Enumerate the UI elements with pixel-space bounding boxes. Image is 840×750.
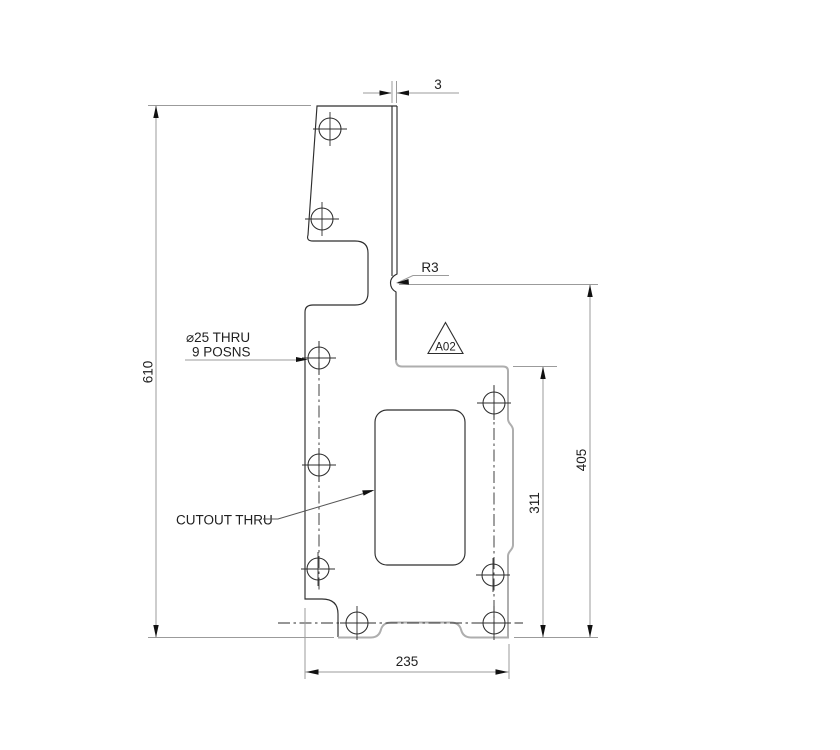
hole-left-top xyxy=(302,341,336,375)
dim-text-311: 311 xyxy=(527,492,542,514)
hole-right-top xyxy=(477,386,511,420)
arrowhead-3-left xyxy=(380,90,392,95)
hole-right-middle xyxy=(476,558,510,592)
arrowhead-610-bottom xyxy=(153,625,158,638)
hole-note-line1: ⌀25 THRU xyxy=(186,330,250,345)
revision-flag: A02 xyxy=(428,323,463,354)
arrowhead-235-right xyxy=(496,669,509,674)
hole-bottom-right xyxy=(477,606,511,640)
arrowhead-235-left xyxy=(306,669,319,674)
dimension-inner-height: 311 xyxy=(513,367,557,638)
outline-lower-right-profile xyxy=(338,360,513,638)
arrowhead-3-right xyxy=(397,90,409,95)
hole-note-line2: 9 POSNS xyxy=(192,345,251,360)
drawing-canvas: 3 610 405 311 235 R3 xyxy=(0,0,840,750)
flag-label: A02 xyxy=(435,342,455,354)
holes xyxy=(301,112,511,640)
hole-left-bottom xyxy=(301,552,335,586)
arrowhead-311-top xyxy=(540,367,545,380)
part-drawing-svg: 3 610 405 311 235 R3 xyxy=(0,0,840,750)
leader-hole-note: ⌀25 THRU 9 POSNS xyxy=(185,330,308,362)
hole-flange-upper xyxy=(313,112,347,146)
arrowhead-610-top xyxy=(153,106,158,119)
arrowhead-311-bottom xyxy=(540,625,545,638)
dim-text-610: 610 xyxy=(141,361,156,384)
leader-corner-radius: R3 xyxy=(396,260,449,285)
dimension-wall-thickness: 3 xyxy=(363,77,459,103)
arrowhead-r3 xyxy=(396,279,409,285)
dim-text-235: 235 xyxy=(396,654,419,669)
part-outline xyxy=(305,106,513,638)
arrowhead-405-top xyxy=(587,285,592,298)
cutout-thru-opening xyxy=(375,410,465,565)
dim-text-3: 3 xyxy=(434,77,442,92)
centerlines xyxy=(278,341,523,634)
arrowhead-cutout-note xyxy=(362,490,374,496)
arrowhead-405-bottom xyxy=(587,625,592,638)
cutout-note-label: CUTOUT THRU xyxy=(176,513,273,528)
dim-text-405: 405 xyxy=(574,449,589,472)
dimension-bottom-width: 235 xyxy=(305,608,509,679)
leader-cutout-note: CUTOUT THRU xyxy=(176,490,375,528)
ext-lines-3 xyxy=(392,81,397,103)
hole-bottom-left xyxy=(340,606,374,640)
label-r3: R3 xyxy=(421,260,438,275)
leader-line-cutout-note xyxy=(263,491,372,519)
hole-left-middle xyxy=(302,448,336,482)
